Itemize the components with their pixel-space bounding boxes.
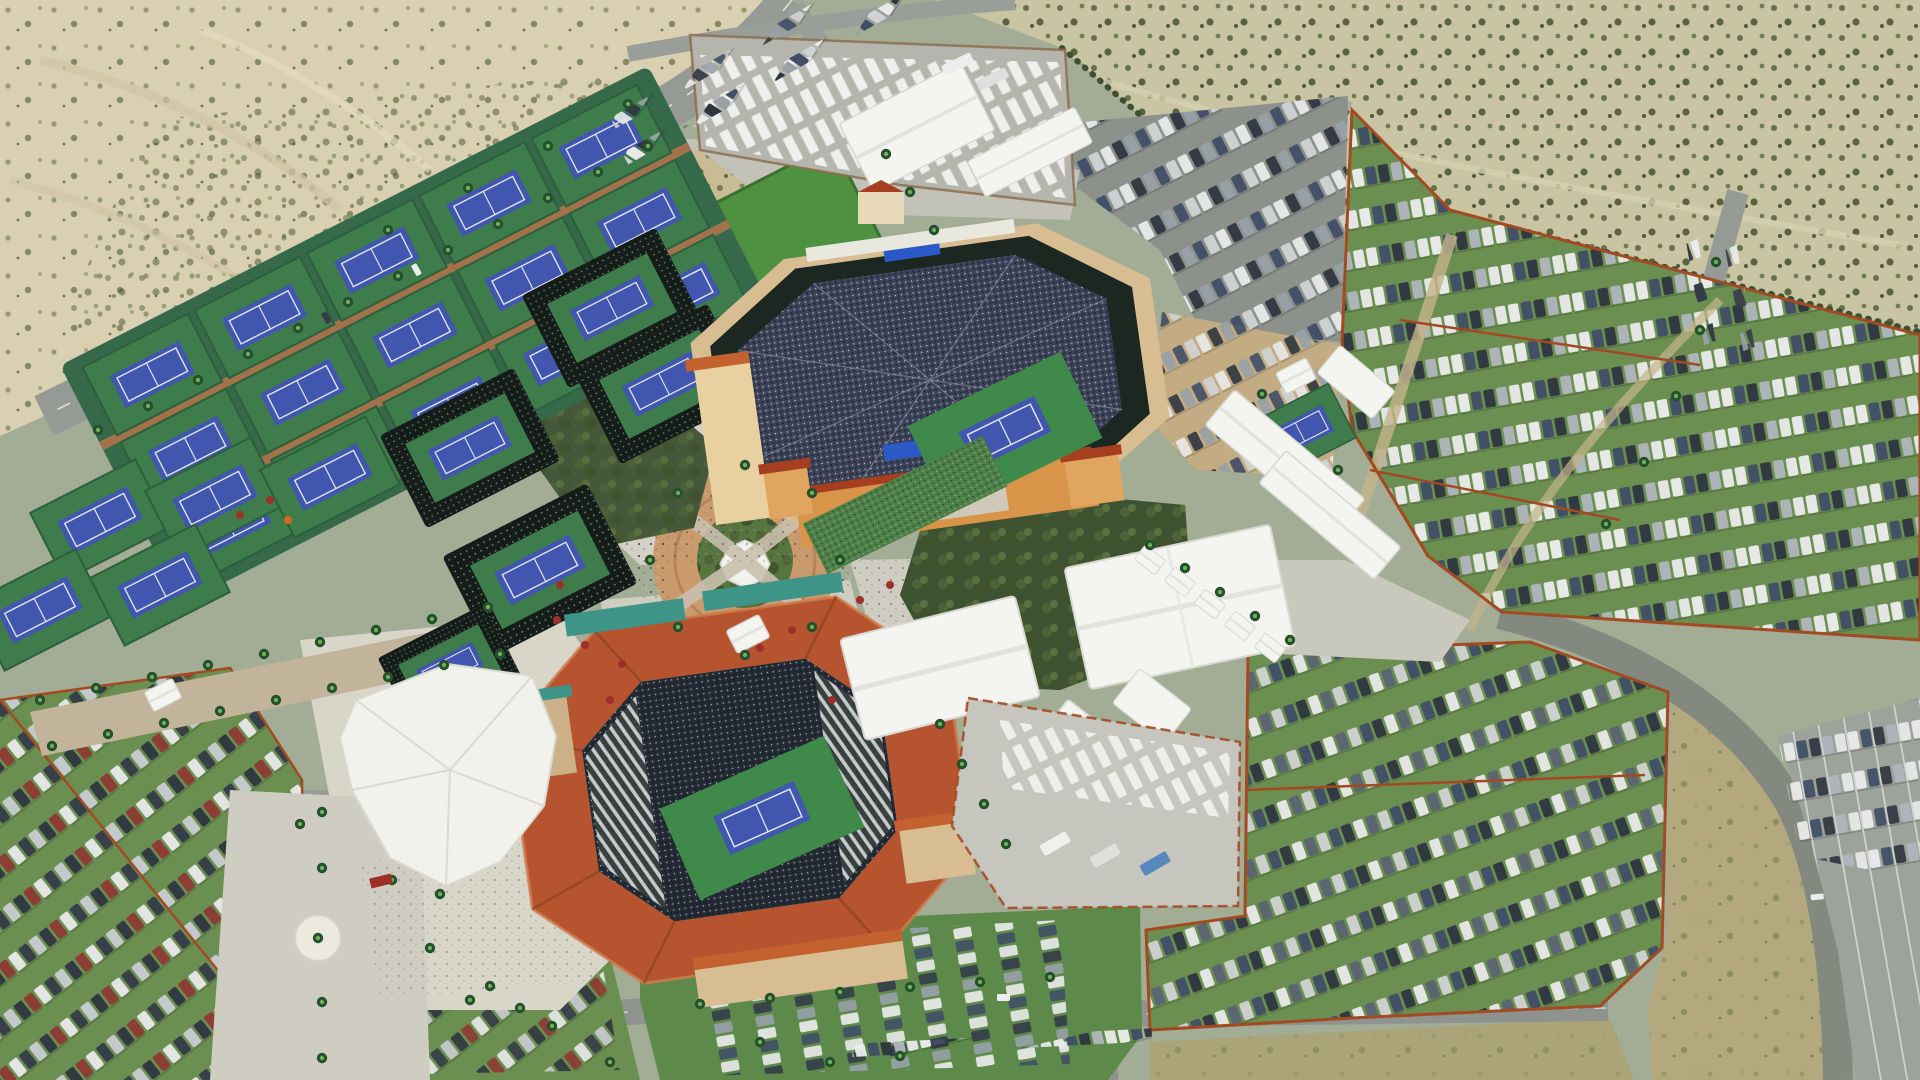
plaza-south-link xyxy=(600,580,870,690)
court-west xyxy=(0,549,110,670)
tree xyxy=(674,195,701,219)
roadside-parking xyxy=(295,0,1824,1057)
stadium-2 xyxy=(340,559,993,1031)
dirt-path xyxy=(1350,235,1452,545)
radial-paths xyxy=(620,470,860,650)
orange-umbrella xyxy=(284,516,292,524)
stadium-1 xyxy=(672,201,1181,574)
road-south xyxy=(560,994,1608,1016)
desert-northwest xyxy=(0,0,790,436)
car-on-road xyxy=(321,311,332,324)
tv-trailers xyxy=(700,55,1066,198)
stadium-2-roof-ring xyxy=(495,583,984,997)
east-gate-walk xyxy=(1240,560,1470,662)
broadcast-compound xyxy=(690,35,1093,224)
stadium-1-south-building xyxy=(795,454,1099,547)
plaza-west xyxy=(540,330,880,565)
central-plaza xyxy=(620,465,860,655)
dirt-lot-east-of-stadium1 xyxy=(1150,312,1340,478)
stadium-2-court xyxy=(713,781,810,855)
bus xyxy=(941,52,975,76)
tent-broadcast-second xyxy=(967,107,1092,197)
plaza-gazebo xyxy=(720,540,770,588)
stadium-2-teal-roof xyxy=(564,598,686,636)
stadium-1-videoboard xyxy=(883,437,943,461)
dry-field-right xyxy=(1648,690,1840,1080)
paved-lot-bottom-right xyxy=(1778,698,1920,1080)
aerial-photo xyxy=(0,0,1920,1080)
north-walk xyxy=(640,135,1080,220)
desert-scrub-band xyxy=(60,70,700,330)
stadium-1-upper-deck xyxy=(701,223,1159,538)
stadium-2-stands xyxy=(574,649,907,931)
sunken-show-court xyxy=(380,368,561,529)
tent-broadcast-main xyxy=(839,62,995,191)
service-trucks xyxy=(1000,720,1230,818)
stadium-1-scoreboard-north xyxy=(884,243,941,262)
venue-grounds xyxy=(30,135,1470,1080)
roads xyxy=(44,0,1838,1080)
court-west xyxy=(30,459,170,580)
stadium-2-field xyxy=(659,736,864,901)
lawn-lot-bottom-center xyxy=(640,906,1142,1080)
stadium-2-bleacher-stripes xyxy=(814,662,901,884)
practice-court-grid xyxy=(60,66,770,604)
red-carpet xyxy=(369,873,393,888)
car-on-road xyxy=(997,994,1010,1001)
service-yard xyxy=(952,698,1240,908)
xeriscape-gardens xyxy=(250,150,780,520)
dry-field-bottom xyxy=(1150,1018,1634,1080)
stadium-1-north-roof xyxy=(805,219,1015,262)
tennis-courts xyxy=(0,66,1356,733)
shade-sails xyxy=(340,664,556,886)
tree xyxy=(594,203,621,227)
sunken-show-court xyxy=(574,304,755,465)
plaza-walk-east xyxy=(850,555,1250,665)
car-on-road xyxy=(411,263,422,276)
ground-base xyxy=(0,0,1920,1080)
sunken-show-court xyxy=(378,604,523,733)
grass-lot-southeast xyxy=(1146,642,1668,1030)
tree-grove-south-of-stadium1 xyxy=(900,495,1195,690)
road-curve-southeast xyxy=(1500,614,1838,1080)
road-top xyxy=(628,2,1015,54)
tree xyxy=(891,894,918,918)
stadium-1-court xyxy=(958,396,1051,469)
practice-lawn xyxy=(663,143,887,336)
grass-lot-east xyxy=(1342,110,1920,640)
clubhouse-building xyxy=(858,192,904,224)
palm-entry-drive xyxy=(30,618,512,756)
logo-circle xyxy=(295,915,341,961)
court-west xyxy=(90,524,230,645)
bus xyxy=(976,67,1010,91)
road-spur-parking xyxy=(795,6,1078,160)
palm-trees xyxy=(35,99,1721,1067)
stadium-2-east-annex xyxy=(899,817,976,884)
compound-fence xyxy=(690,35,1075,205)
ground xyxy=(0,0,1920,1080)
stadium-1-stands xyxy=(730,243,1130,517)
hospitality-tents xyxy=(144,345,1401,859)
road-lot-divider xyxy=(1190,100,1348,332)
stadium-1-field xyxy=(908,352,1103,513)
paved-lot-north xyxy=(880,96,1348,342)
grass-lot-southwest xyxy=(0,668,640,1080)
tree xyxy=(841,919,868,943)
stadium-1-lawn-terrace xyxy=(803,436,1007,574)
parking-lots xyxy=(0,96,1920,1080)
road-service-south xyxy=(1106,896,1108,1080)
stadium-2-south-annex xyxy=(694,937,908,1008)
stadium-1-aisles xyxy=(730,243,1130,517)
boundary-hedge xyxy=(1062,48,1920,332)
stadium2-apron xyxy=(300,615,640,1010)
lot-fence-border xyxy=(1342,110,1920,640)
stadium-1-rim xyxy=(681,209,1179,551)
court-west xyxy=(145,437,285,558)
car-on-road xyxy=(1810,893,1823,900)
court-west xyxy=(260,416,400,537)
desert-northeast xyxy=(935,0,1920,332)
lot-fence xyxy=(1370,320,1700,520)
stadium-1-roof-terrace xyxy=(885,475,1009,527)
tree-band-west-of-stadium1 xyxy=(540,368,716,548)
practice-court-northeast xyxy=(1244,383,1356,480)
stadium-2-teal-roof xyxy=(702,572,843,611)
sunken-show-court xyxy=(442,483,637,657)
stadium-1-west-building xyxy=(694,359,772,525)
sunken-show-court xyxy=(522,228,703,389)
stadium-1-south-roof xyxy=(794,446,1093,502)
road-northeast-gate xyxy=(1500,192,1738,614)
stadium-2-bleacher-stripes xyxy=(578,696,665,918)
perimeter-boulevard xyxy=(44,0,792,416)
gate-forecourt xyxy=(210,790,430,1080)
aerial-photo-canvas xyxy=(0,0,1920,1080)
plaza-umbrellas xyxy=(236,496,894,889)
